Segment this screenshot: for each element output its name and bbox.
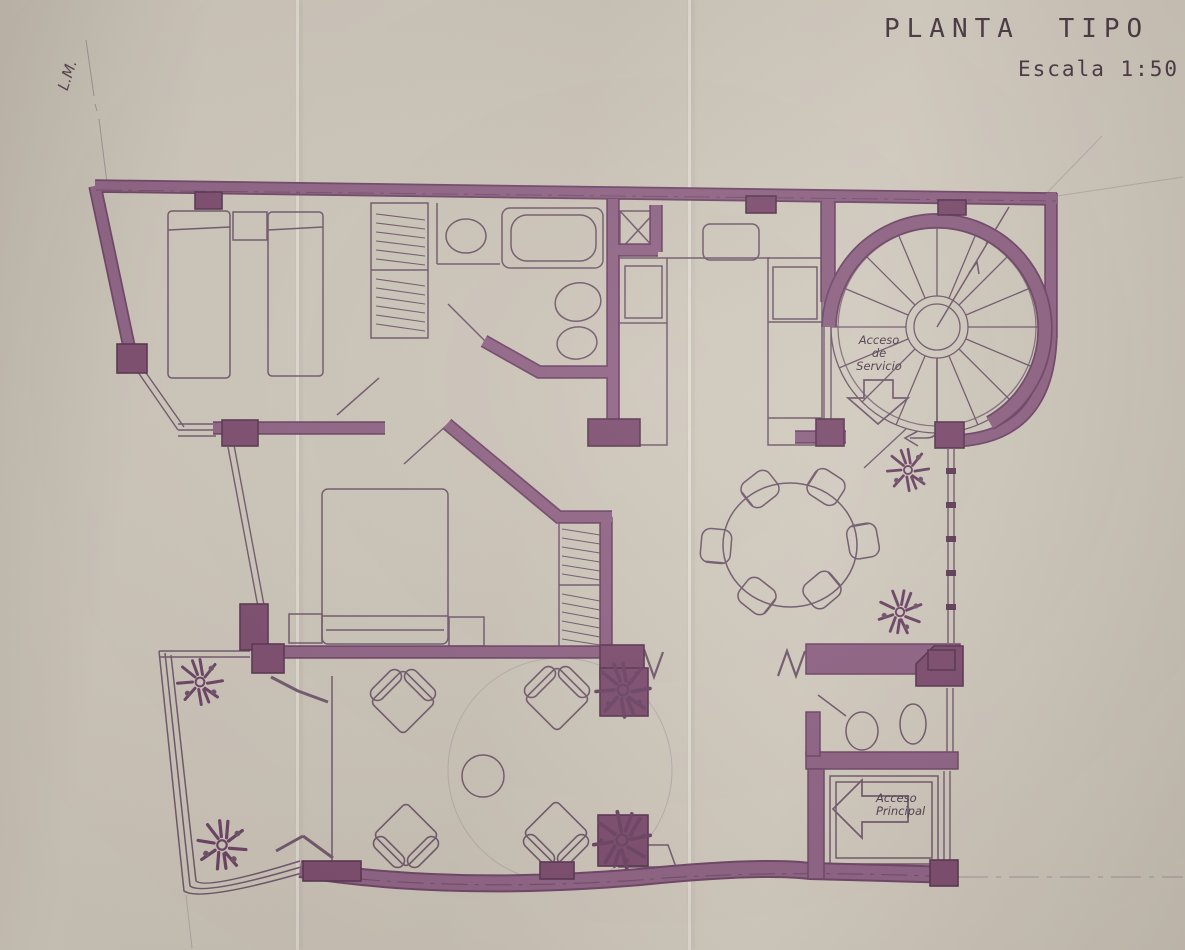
walls [95, 186, 1057, 885]
wall-pier [938, 200, 966, 215]
column [117, 344, 147, 373]
coffee-table [462, 755, 504, 797]
dining-chair [804, 465, 849, 509]
window [228, 445, 264, 607]
column [935, 422, 964, 448]
plant [193, 816, 252, 875]
plant [887, 449, 928, 490]
column [303, 861, 361, 881]
armchair [521, 800, 592, 868]
wall [806, 712, 820, 756]
plant [870, 582, 929, 641]
nightstand [449, 617, 484, 646]
dining-chair [700, 528, 733, 564]
service-access-line3: Servicio [833, 360, 925, 373]
guest-toilet [818, 695, 926, 750]
service-access-line2: de [833, 347, 925, 360]
wall [806, 752, 958, 769]
window [947, 688, 953, 752]
plan-title: PLANTA TIPO [884, 14, 1149, 44]
wardrobe [559, 521, 602, 650]
column [816, 419, 844, 446]
entry-door-frame [944, 771, 950, 866]
windows [131, 302, 956, 866]
reference-lines [86, 40, 1183, 948]
door-leaf [337, 378, 379, 415]
column [252, 644, 284, 673]
folding-doors [271, 677, 333, 858]
column [930, 860, 958, 886]
living-room [332, 651, 805, 882]
dining-chair [845, 522, 880, 561]
kitchen-counter [768, 258, 822, 445]
armchair [371, 802, 442, 870]
step-zigzag [778, 651, 805, 676]
nightstand [289, 614, 322, 643]
main-access-line2: Principal [876, 805, 946, 818]
main-access-line1: Acceso [876, 792, 946, 805]
single-bed [168, 211, 230, 378]
property-line [86, 40, 107, 183]
column [928, 650, 955, 670]
column [540, 862, 574, 879]
dining-chair [734, 574, 779, 619]
door-leaf [818, 695, 846, 716]
door-leaf [404, 425, 447, 464]
railing [159, 651, 250, 657]
toilet [552, 279, 605, 326]
hanger-marks [376, 214, 425, 331]
double-bed [322, 489, 448, 644]
terrace [159, 651, 333, 894]
door-leaf [448, 304, 486, 342]
window-wall [948, 449, 954, 643]
armchair [368, 667, 439, 735]
plant [178, 660, 223, 705]
service-access-label: Acceso de Servicio [833, 334, 925, 373]
kitchen-counter [619, 258, 667, 445]
plan-scale: Escala 1:50 [1018, 57, 1179, 81]
entry-vestibule [830, 776, 938, 864]
toilet [846, 712, 878, 750]
kitchen-sink [703, 224, 759, 260]
column [240, 604, 268, 650]
dining-area [700, 449, 930, 641]
floor-plan-drawing [0, 0, 1185, 950]
service-access-line1: Acceso [833, 334, 925, 347]
armchair [522, 664, 593, 732]
washbasin [446, 219, 486, 253]
hanger-marks [562, 529, 600, 645]
main-access-label: Acceso Principal [876, 792, 946, 818]
wall-pier [746, 196, 776, 213]
twin-bedroom [168, 203, 428, 415]
bathroom [437, 203, 604, 362]
bidet [555, 324, 599, 361]
column [222, 420, 258, 446]
washbasin [900, 704, 926, 744]
master-bedroom [289, 425, 602, 650]
wall [808, 769, 824, 879]
nightstand [233, 212, 267, 240]
wall-pier [195, 192, 222, 209]
single-bed [268, 212, 323, 376]
column [588, 419, 640, 446]
scanned-plan-sheet: PLANTA TIPO Escala 1:50 L.M. Acceso de S… [0, 0, 1185, 950]
wardrobe [371, 203, 428, 338]
